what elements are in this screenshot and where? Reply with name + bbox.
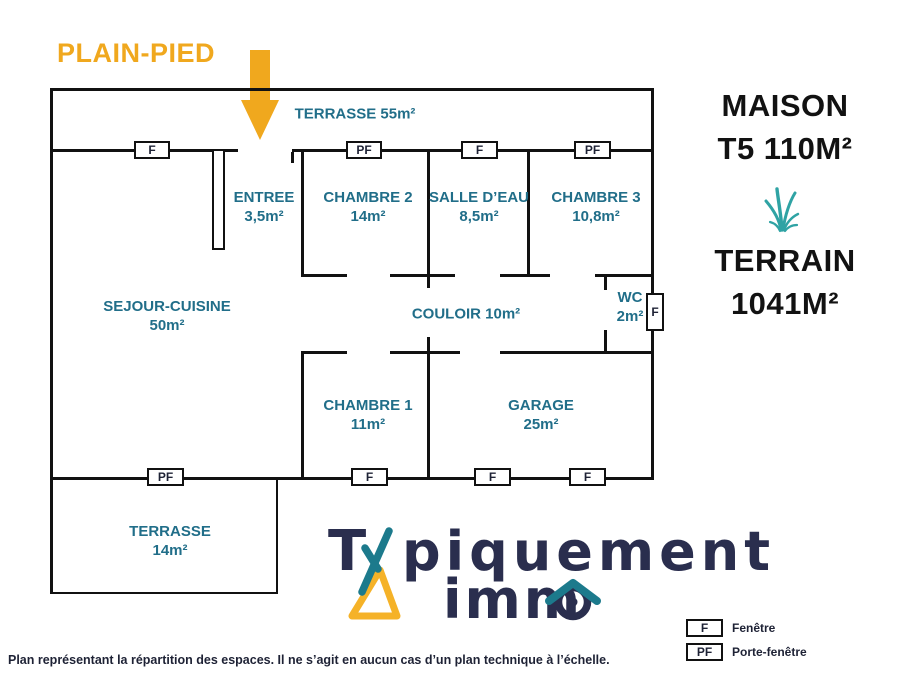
wall	[50, 88, 654, 91]
wall	[604, 330, 607, 353]
wall	[301, 351, 304, 477]
room-name: CHAMBRE 3	[551, 188, 640, 207]
room-name: COULOIR 10m²	[412, 306, 520, 323]
wall	[301, 152, 304, 274]
room-area: 11m²	[323, 415, 412, 434]
legend-row-porte-fenetre: PF Porte-fenêtre	[686, 643, 807, 661]
room-label-chambre1: CHAMBRE 1 11m²	[323, 396, 412, 434]
legend-row-fenetre: F Fenêtre	[686, 619, 807, 637]
disclaimer-text: Plan représentant la répartition des esp…	[8, 653, 610, 667]
wall	[390, 351, 460, 354]
wall	[50, 88, 53, 480]
terrain-title-line2: 1041M²	[672, 288, 898, 320]
room-name: TERRASSE 55m²	[295, 106, 416, 123]
room-name: ENTREE	[234, 188, 295, 207]
window-marker-chambre1: F	[351, 468, 388, 486]
legend-door-window-label: Porte-fenêtre	[732, 645, 807, 659]
window-symbol: F	[584, 471, 591, 483]
room-name: CHAMBRE 1	[323, 396, 412, 415]
room-label-salle-eau: SALLE D’EAU 8,5m²	[429, 188, 529, 226]
wall	[651, 88, 654, 480]
room-name: SALLE D’EAU	[429, 188, 529, 207]
window-symbol: PF	[356, 144, 371, 156]
legend-window-symbol: F	[686, 619, 723, 637]
room-label-garage: GARAGE 25m²	[508, 396, 574, 434]
window-symbol: F	[148, 144, 155, 156]
maison-title-line1: MAISON	[672, 90, 898, 122]
wall	[301, 351, 347, 354]
wall	[212, 149, 225, 250]
window-marker-terrasse: PF	[147, 468, 184, 486]
floor-label: PLAIN-PIED	[57, 38, 215, 69]
room-area: 25m²	[508, 415, 574, 434]
wall	[604, 274, 607, 290]
entrance-arrow-icon	[236, 48, 284, 144]
logo-word1-initial: T	[328, 519, 366, 584]
room-area: 8,5m²	[429, 207, 529, 226]
wall	[50, 592, 278, 594]
window-symbol: F	[366, 471, 373, 483]
window-marker-garage-right: F	[569, 468, 606, 486]
window-symbol: PF	[585, 144, 600, 156]
room-area: 10,8m²	[551, 207, 640, 226]
window-marker-chambre3: PF	[574, 141, 611, 159]
window-marker-garage-left: F	[474, 468, 511, 486]
room-label-chambre2: CHAMBRE 2 14m²	[323, 188, 412, 226]
legend-door-window-symbol: PF	[686, 643, 723, 661]
window-marker-wc: F	[646, 293, 664, 331]
window-marker-salle-eau: F	[461, 141, 498, 159]
room-area: 14m²	[323, 207, 412, 226]
window-symbol: PF	[158, 471, 173, 483]
room-name: TERRASSE	[129, 522, 211, 541]
room-label-terrasse-bottom: TERRASSE 14m²	[129, 522, 211, 560]
window-symbol: F	[651, 306, 658, 318]
wall	[276, 480, 278, 592]
room-label-sejour: SEJOUR-CUISINE 50m²	[103, 297, 231, 335]
window-symbol: F	[476, 144, 483, 156]
room-label-entree: ENTREE 3,5m²	[234, 188, 295, 226]
window-symbol: F	[489, 471, 496, 483]
wall	[500, 274, 550, 277]
room-label-couloir: COULOIR 10m²	[412, 305, 520, 324]
room-name: GARAGE	[508, 396, 574, 415]
wall	[390, 274, 455, 277]
wall	[500, 351, 653, 354]
wall	[427, 337, 430, 477]
room-label-chambre3: CHAMBRE 3 10,8m²	[551, 188, 640, 226]
wall	[291, 152, 294, 163]
terrain-title-line1: TERRAIN	[672, 245, 898, 277]
room-area: 50m²	[103, 316, 231, 335]
window-marker-chambre2: PF	[346, 141, 382, 159]
room-area: 14m²	[129, 541, 211, 560]
window-marker-sejour: F	[134, 141, 170, 159]
room-name: CHAMBRE 2	[323, 188, 412, 207]
room-label-terrasse-top: TERRASSE 55m²	[295, 105, 416, 124]
wall	[50, 480, 53, 594]
room-label-wc: WC 2m²	[617, 288, 644, 326]
legend: F Fenêtre PF Porte-fenêtre	[686, 619, 807, 667]
legend-window-label: Fenêtre	[732, 621, 775, 635]
floor-plan-page: PLAIN-PIED F PF F PF PF F F F F TERRASSE…	[0, 0, 902, 678]
room-name: WC	[617, 288, 644, 307]
grass-icon	[758, 186, 806, 234]
maison-title-line2: T5 110M²	[672, 133, 898, 165]
room-area: 3,5m²	[234, 207, 295, 226]
wall	[301, 274, 347, 277]
room-area: 2m²	[617, 307, 644, 326]
room-name: SEJOUR-CUISINE	[103, 297, 231, 316]
